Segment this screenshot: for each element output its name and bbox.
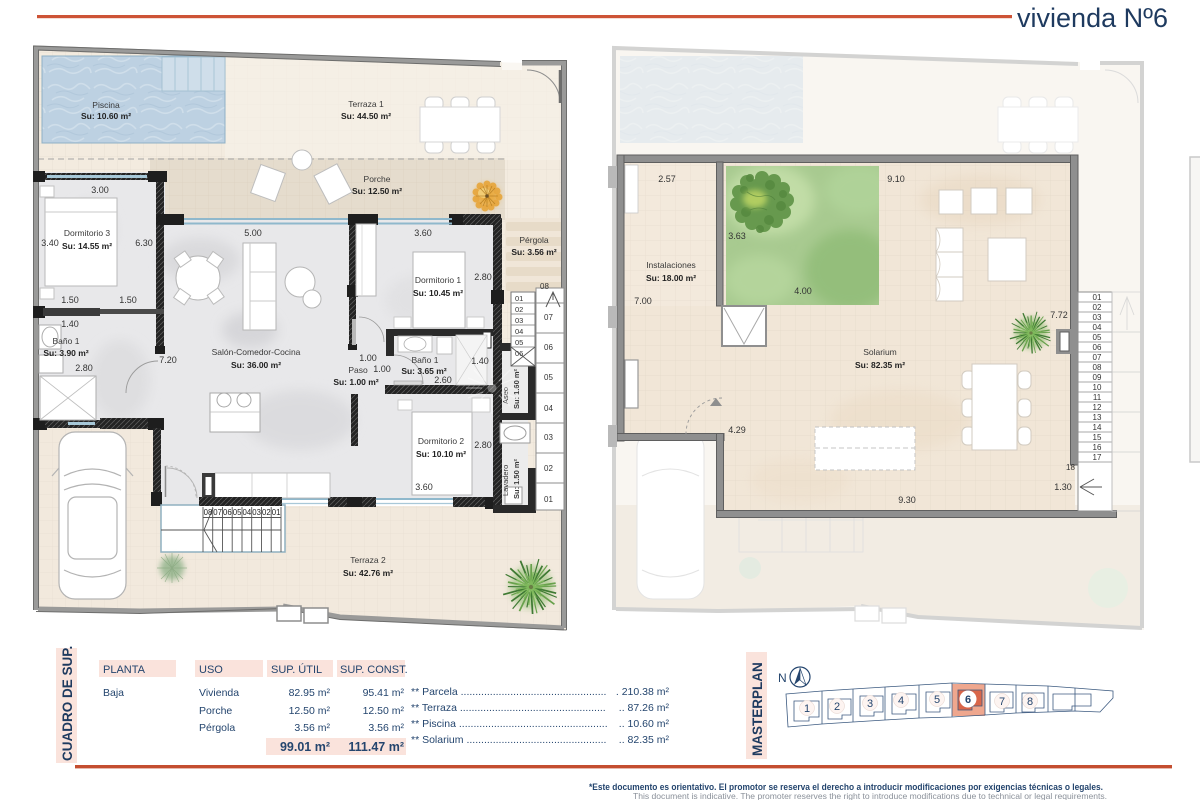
svg-text:07: 07 — [544, 313, 553, 322]
svg-text:01: 01 — [515, 294, 523, 303]
svg-text:Solarium: Solarium — [863, 347, 897, 357]
svg-text:05: 05 — [544, 373, 553, 382]
svg-text:Porche: Porche — [199, 705, 232, 717]
svg-text:18: 18 — [1066, 463, 1075, 472]
svg-text:Vivienda: Vivienda — [199, 687, 239, 699]
svg-text:12: 12 — [1093, 403, 1102, 412]
svg-text:SUP. ÚTIL: SUP. ÚTIL — [271, 663, 322, 676]
svg-text:1.00: 1.00 — [359, 353, 377, 363]
svg-text:05: 05 — [1093, 333, 1102, 342]
svg-text:Instalaciones: Instalaciones — [646, 260, 696, 270]
svg-text:99.01 m²: 99.01 m² — [280, 740, 330, 754]
svg-text:Dormitorio 3: Dormitorio 3 — [64, 228, 111, 238]
svg-text:01: 01 — [1093, 293, 1102, 302]
svg-text:3.60: 3.60 — [414, 228, 432, 238]
svg-text:9.10: 9.10 — [887, 174, 905, 184]
svg-text:04: 04 — [1093, 323, 1102, 332]
svg-text:16: 16 — [1093, 443, 1102, 452]
svg-text:Su: 10.10 m²: Su: 10.10 m² — [416, 449, 466, 459]
svg-text:01: 01 — [272, 508, 281, 517]
svg-text:PLANTA: PLANTA — [103, 664, 146, 676]
svg-text:1.40: 1.40 — [61, 319, 79, 329]
svg-text:1.50: 1.50 — [61, 295, 79, 305]
svg-text:Piscina: Piscina — [92, 100, 120, 110]
svg-text:05: 05 — [233, 508, 242, 517]
svg-text:Su: 12.50 m²: Su: 12.50 m² — [352, 186, 402, 196]
svg-text:17: 17 — [1093, 453, 1102, 462]
svg-text:Baño 1: Baño 1 — [53, 336, 80, 346]
svg-text:Dormitorio 1: Dormitorio 1 — [415, 275, 462, 285]
svg-text:Su: 18.00 m²: Su: 18.00 m² — [646, 273, 696, 283]
svg-text:7.20: 7.20 — [159, 355, 177, 365]
svg-text:3.60: 3.60 — [415, 482, 433, 492]
svg-text:3.63: 3.63 — [728, 231, 746, 241]
svg-text:6: 6 — [965, 694, 971, 706]
svg-text:04: 04 — [243, 508, 252, 517]
svg-text:13: 13 — [1093, 413, 1102, 422]
svg-text:11: 11 — [1093, 393, 1102, 402]
svg-text:02: 02 — [262, 508, 271, 517]
svg-text:7.72: 7.72 — [1050, 310, 1068, 320]
svg-text:14: 14 — [1093, 423, 1102, 432]
svg-text:1: 1 — [804, 703, 810, 715]
svg-text:8: 8 — [1027, 696, 1033, 708]
svg-text:5.00: 5.00 — [244, 228, 262, 238]
svg-text:2.80: 2.80 — [474, 440, 492, 450]
svg-text:3.00: 3.00 — [91, 185, 109, 195]
svg-text:Su: 1.00 m²: Su: 1.00 m² — [333, 377, 379, 387]
svg-text:1.40: 1.40 — [471, 356, 489, 366]
svg-text:1.00: 1.00 — [373, 364, 391, 374]
svg-text:Lavadero: Lavadero — [501, 465, 510, 496]
svg-text:111.47 m²: 111.47 m² — [348, 740, 404, 754]
svg-text:07: 07 — [213, 508, 222, 517]
svg-text:Porche: Porche — [364, 174, 391, 184]
svg-text:1.50: 1.50 — [119, 295, 137, 305]
svg-text:08: 08 — [1093, 363, 1102, 372]
svg-text:Su: 82.35 m²: Su: 82.35 m² — [855, 360, 905, 370]
svg-text:2: 2 — [834, 701, 840, 713]
svg-text:9.30: 9.30 — [898, 495, 916, 505]
svg-text:vivienda Nº6: vivienda Nº6 — [1017, 3, 1168, 33]
svg-text:2.80: 2.80 — [474, 272, 492, 282]
svg-text:95.41 m²: 95.41 m² — [363, 687, 405, 699]
svg-text:USO: USO — [199, 664, 223, 676]
svg-text:4.00: 4.00 — [794, 286, 812, 296]
svg-text:CUADRO DE SUP.: CUADRO DE SUP. — [60, 646, 75, 761]
svg-text:Su: 14.55 m²: Su: 14.55 m² — [62, 241, 112, 251]
svg-text:82.95 m²: 82.95 m² — [289, 687, 331, 699]
svg-text:Su: 36.00 m²: Su: 36.00 m² — [231, 360, 281, 370]
svg-text:Su: 3.90 m²: Su: 3.90 m² — [43, 348, 89, 358]
svg-text:Terraza 1: Terraza 1 — [348, 99, 384, 109]
svg-text:3: 3 — [867, 698, 873, 710]
svg-text:06: 06 — [223, 508, 232, 517]
svg-text:08: 08 — [204, 508, 213, 517]
svg-text:09: 09 — [1093, 373, 1102, 382]
svg-text:** Parcela ...................: ** Parcela .............................… — [411, 686, 606, 698]
svg-text:.. 87.26 m²: .. 87.26 m² — [619, 702, 670, 714]
svg-text:3.56 m²: 3.56 m² — [294, 722, 330, 734]
svg-text:Paso: Paso — [348, 365, 368, 375]
svg-text:Su: 10.45 m²: Su: 10.45 m² — [413, 288, 463, 298]
svg-text:Dormitorio 2: Dormitorio 2 — [418, 436, 465, 446]
svg-text:5: 5 — [934, 694, 940, 706]
svg-text:04: 04 — [515, 327, 523, 336]
svg-text:15: 15 — [1093, 433, 1102, 442]
svg-text:06: 06 — [544, 343, 553, 352]
svg-text:Su: 1.50 m²: Su: 1.50 m² — [512, 458, 521, 499]
svg-text:** Piscina ...................: ** Piscina .............................… — [411, 718, 608, 730]
svg-text:Su: 10.60 m²: Su: 10.60 m² — [81, 111, 131, 121]
svg-text:.. 82.35 m²: .. 82.35 m² — [619, 734, 670, 746]
svg-text:03: 03 — [515, 316, 523, 325]
svg-text:MASTERPLAN: MASTERPLAN — [750, 662, 765, 756]
svg-text:10: 10 — [1093, 383, 1102, 392]
svg-text:2.80: 2.80 — [75, 363, 93, 373]
svg-text:** Solarium ..................: ** Solarium ............................… — [411, 734, 606, 746]
svg-text:12.50 m²: 12.50 m² — [363, 705, 405, 717]
svg-text:01: 01 — [544, 495, 553, 504]
svg-text:02: 02 — [1093, 303, 1102, 312]
svg-text:2.57: 2.57 — [658, 174, 676, 184]
svg-text:12.50 m²: 12.50 m² — [289, 705, 331, 717]
svg-text:Baja: Baja — [103, 687, 124, 699]
svg-text:04: 04 — [544, 404, 553, 413]
svg-text:1.30: 1.30 — [1054, 482, 1072, 492]
svg-text:Su: 42.76 m²: Su: 42.76 m² — [343, 568, 393, 578]
svg-text:08: 08 — [540, 282, 549, 291]
svg-text:Pérgola: Pérgola — [199, 722, 235, 734]
svg-text:7.00: 7.00 — [634, 296, 652, 306]
svg-text:05: 05 — [515, 338, 523, 347]
svg-text:Terraza 2: Terraza 2 — [350, 555, 386, 565]
svg-text:7: 7 — [999, 696, 1005, 708]
svg-text:4: 4 — [898, 695, 904, 707]
svg-text:N: N — [778, 671, 787, 685]
svg-text:** Terraza ...................: ** Terraza .............................… — [411, 702, 606, 714]
svg-text:4.29: 4.29 — [728, 425, 746, 435]
svg-text:06: 06 — [1093, 343, 1102, 352]
svg-text:Su: 3.56 m²: Su: 3.56 m² — [511, 247, 557, 257]
svg-text:Su: 44.50 m²: Su: 44.50 m² — [341, 111, 391, 121]
svg-text:02: 02 — [515, 305, 523, 314]
svg-text:. 210.38 m²: . 210.38 m² — [616, 686, 670, 698]
svg-text:Pérgola: Pérgola — [519, 235, 549, 245]
svg-text:Su: 1.60 m²: Su: 1.60 m² — [512, 368, 521, 409]
svg-text:02: 02 — [544, 464, 553, 473]
svg-text:07: 07 — [1093, 353, 1102, 362]
svg-text:2.60: 2.60 — [434, 375, 452, 385]
svg-text:Baño 1: Baño 1 — [412, 355, 439, 365]
svg-text:SUP. CONST.: SUP. CONST. — [340, 664, 408, 676]
svg-text:03: 03 — [544, 433, 553, 442]
svg-text:03: 03 — [252, 508, 261, 517]
svg-text:.. 10.60 m²: .. 10.60 m² — [619, 718, 670, 730]
svg-text:03: 03 — [1093, 313, 1102, 322]
svg-text:3.40: 3.40 — [41, 238, 59, 248]
svg-text:This document is indicative. T: This document is indicative. The promote… — [633, 791, 1107, 800]
svg-text:3.56 m²: 3.56 m² — [368, 722, 404, 734]
svg-text:Salón-Comedor-Cocina: Salón-Comedor-Cocina — [212, 347, 301, 357]
svg-text:6.30: 6.30 — [135, 238, 153, 248]
